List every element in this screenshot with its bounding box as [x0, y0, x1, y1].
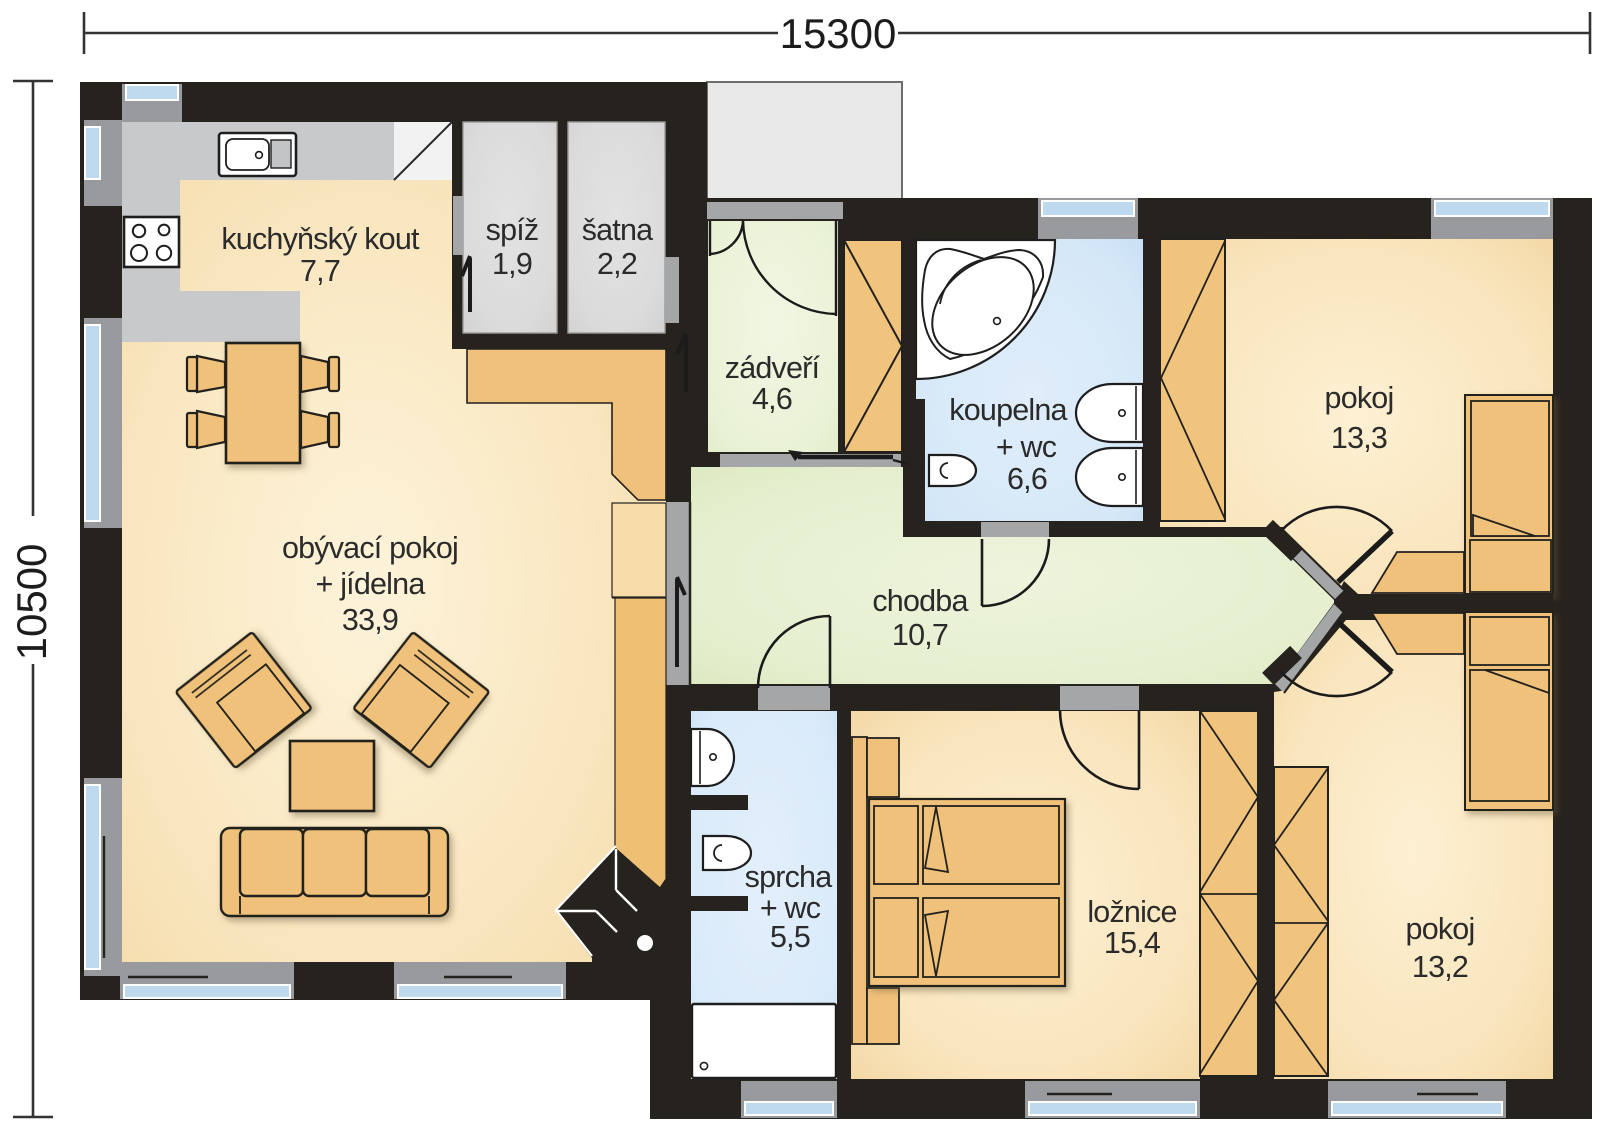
svg-text:obývací pokoj: obývací pokoj — [282, 531, 458, 565]
svg-text:kuchyňský kout: kuchyňský kout — [221, 222, 420, 256]
svg-text:6,6: 6,6 — [1007, 462, 1047, 496]
svg-text:10500: 10500 — [8, 544, 55, 661]
svg-text:33,9: 33,9 — [342, 603, 398, 637]
svg-text:1,9: 1,9 — [492, 247, 532, 281]
svg-text:4,6: 4,6 — [752, 382, 792, 416]
svg-text:+ wc: + wc — [996, 430, 1057, 464]
svg-text:15300: 15300 — [780, 10, 897, 57]
svg-text:5,5: 5,5 — [770, 920, 810, 954]
svg-text:7,7: 7,7 — [300, 254, 340, 288]
svg-text:zádveří: zádveří — [725, 351, 821, 385]
svg-text:pokoj: pokoj — [1406, 912, 1475, 946]
svg-text:šatna: šatna — [582, 213, 653, 247]
svg-text:13,2: 13,2 — [1412, 950, 1468, 984]
svg-text:chodba: chodba — [872, 584, 968, 618]
svg-text:+ jídelna: + jídelna — [316, 567, 426, 601]
svg-text:ložnice: ložnice — [1087, 895, 1176, 929]
svg-text:sprcha: sprcha — [745, 860, 833, 894]
svg-text:koupelna: koupelna — [949, 393, 1067, 427]
svg-text:spíž: spíž — [486, 213, 539, 247]
svg-text:pokoj: pokoj — [1325, 381, 1394, 415]
svg-text:13,3: 13,3 — [1331, 421, 1387, 455]
svg-text:2,2: 2,2 — [597, 247, 637, 281]
svg-text:10,7: 10,7 — [892, 618, 948, 652]
svg-text:15,4: 15,4 — [1104, 926, 1161, 960]
